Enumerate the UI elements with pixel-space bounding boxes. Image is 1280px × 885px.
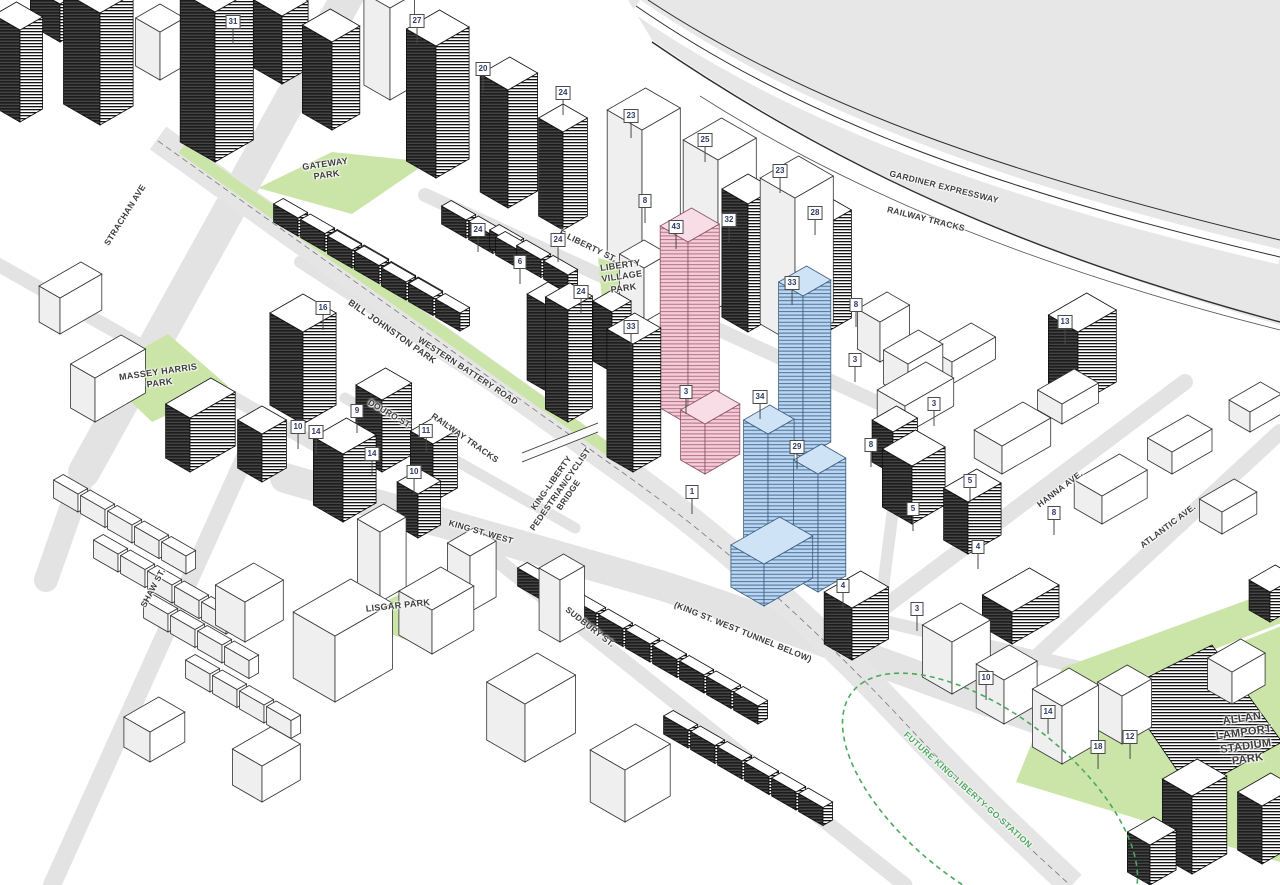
marker-leader-line [855,367,856,382]
marker-leader-line [316,439,317,454]
building-number-marker: 18 [1091,740,1106,769]
park-label: GATEWAY PARK [302,156,351,185]
marker-leader-line [357,418,358,433]
street-label: SHAW ST. [138,567,167,610]
building-number-marker: 8 [1048,506,1061,535]
marker-leader-line [483,76,484,91]
building-number-marker: 8 [865,438,878,467]
building-number-marker: 23 [773,164,788,193]
marker-leader-line [871,452,872,467]
future-go-station-label: FUTURE KING-LIBERTY GO STATION [902,729,1035,850]
marker-number: 6 [514,255,527,269]
building-number-marker: 8 [850,298,863,327]
building-number-marker: 33 [785,276,800,305]
marker-leader-line [1065,329,1066,344]
park-label: BILL JOHNSTON PARK [346,297,438,366]
marker-leader-line [426,438,427,453]
marker-leader-line [760,404,761,419]
marker-number: 5 [964,474,977,488]
building-number-marker: 6 [514,255,527,284]
park-label: ALLAN LAMPORT STADIUM PARK [1213,709,1277,771]
marker-leader-line [298,434,299,449]
marker-leader-line [631,123,632,138]
marker-leader-line [705,147,706,162]
marker-number: 43 [669,220,684,234]
marker-number: 9 [351,404,364,418]
marker-leader-line [323,315,324,330]
building-number-marker: 10 [979,671,994,700]
marker-number: 5 [907,502,920,516]
marker-number: 4 [837,579,850,593]
marker-leader-line [558,247,559,262]
marker-leader-line [815,220,816,235]
marker-leader-line [797,454,798,469]
marker-leader-line [1098,754,1099,769]
marker-leader-line [729,227,730,242]
marker-leader-line [478,237,479,252]
street-label: HANNA AVE. [1035,468,1085,509]
marker-number: 11 [419,424,433,438]
building-number-marker: 1 [686,485,699,514]
building-number-marker: 29 [790,440,805,469]
marker-number: 25 [698,133,713,147]
marker-leader-line [692,499,693,514]
marker-number: 29 [790,440,805,454]
marker-number: 3 [849,353,862,367]
marker-leader-line [970,488,971,503]
building-number-marker: 4 [837,579,850,608]
marker-number: 28 [808,206,823,220]
building-number-marker: 14 [309,425,324,454]
building-number-marker: 14 [365,447,380,476]
building-number-marker: 27 [410,14,425,43]
building-number-marker: 33 [624,320,639,349]
marker-leader-line [563,100,564,115]
marker-leader-line [1130,744,1131,759]
street-label: WESTERN BATTERY ROAD [416,335,520,408]
street-label: STRACHAN AVE [102,182,148,247]
building-number-marker: 12 [1123,730,1138,759]
marker-number: 33 [624,320,639,334]
marker-number: 18 [1091,740,1106,754]
marker-leader-line [581,299,582,314]
marker-number: 27 [410,14,425,28]
marker-leader-line [676,234,677,249]
building-number-marker: 3 [928,397,941,426]
building-number-marker: 34 [753,390,768,419]
marker-leader-line [414,479,415,494]
marker-leader-line [986,685,987,700]
park-label: LISGAR PARK [365,597,430,615]
marker-number: 13 [1058,315,1073,329]
building-number-marker: 31 [226,15,241,44]
marker-number: 8 [850,298,863,312]
building-number-marker: 16 [316,301,331,330]
marker-number: 24 [556,86,571,100]
building-number-marker: 10 [407,465,422,494]
marker-number: 16 [316,301,331,315]
marker-leader-line [645,208,646,223]
marker-number: 14 [365,447,380,461]
marker-leader-line [856,312,857,327]
marker-leader-line [780,178,781,193]
liberty-village-axonometric-map: STRACHAN AVEGARDINER EXPRESSWAYRAILWAY T… [0,0,1280,885]
marker-leader-line [233,29,234,44]
marker-number: 4 [972,540,985,554]
building-number-marker: 32 [722,213,737,242]
building-number-marker: 3 [849,353,862,382]
marker-number: 10 [291,420,306,434]
map-annotation-overlay: STRACHAN AVEGARDINER EXPRESSWAYRAILWAY T… [0,0,1280,885]
marker-number: 3 [928,397,941,411]
marker-leader-line [843,593,844,608]
marker-leader-line [417,28,418,43]
street-label: DOURO ST. [366,397,414,431]
marker-number: 32 [722,213,737,227]
building-number-marker: 24 [574,285,589,314]
marker-leader-line [978,554,979,569]
building-number-marker: 4 [972,540,985,569]
marker-leader-line [372,461,373,476]
marker-number: 3 [680,385,693,399]
marker-number: 1 [686,485,699,499]
marker-leader-line [1048,719,1049,734]
building-number-marker: 24 [556,86,571,115]
marker-leader-line [917,616,918,631]
building-number-marker: 28 [808,206,823,235]
marker-number: 23 [624,109,639,123]
marker-number: 14 [309,425,324,439]
park-label: MASSEY HARRIS PARK [118,361,199,394]
building-number-marker: 3 [680,385,693,414]
street-label: GARDINER EXPRESSWAY [888,168,999,205]
building-number-marker: 5 [964,474,977,503]
building-number-marker: 20 [476,62,491,91]
marker-leader-line [792,290,793,305]
building-number-marker: 14 [1041,705,1056,734]
marker-number: 8 [1048,506,1061,520]
marker-number: 24 [574,285,589,299]
street-label: E LIBERTY ST. [557,227,618,264]
building-number-marker: 25 [698,133,713,162]
building-number-marker: 13 [1058,315,1073,344]
marker-number: 8 [639,194,652,208]
marker-number: 12 [1123,730,1138,744]
building-number-marker: 8 [639,194,652,223]
tunnel-note: (KING ST. WEST TUNNEL BELOW) [673,599,814,664]
building-number-marker: 5 [907,502,920,531]
marker-number: 20 [476,62,491,76]
street-label: SUDBURY ST. [563,604,616,649]
building-number-marker: 9 [351,404,364,433]
marker-number: 10 [979,671,994,685]
building-number-marker: 23 [624,109,639,138]
marker-leader-line [934,411,935,426]
building-number-marker: 10 [291,420,306,449]
street-label: RAILWAY TRACKS [429,411,500,465]
marker-leader-line [1054,520,1055,535]
pedestrian-bridge-label: KING-LIBERTY PEDESTRIAN/CYCLIST BRIDGE [519,439,602,538]
marker-number: 14 [1041,705,1056,719]
street-label: KING ST. WEST [447,518,514,547]
building-number-marker: 24 [471,223,486,252]
park-label: LIBERTY VILLAGE PARK [599,257,644,296]
marker-number: 8 [865,438,878,452]
marker-leader-line [913,516,914,531]
street-label: ATLANTIC AVE. [1138,502,1198,551]
marker-number: 31 [226,15,241,29]
marker-number: 10 [407,465,422,479]
building-number-marker: 3 [911,602,924,631]
marker-number: 23 [773,164,788,178]
street-label: RAILWAY TRACKS [886,204,966,234]
marker-number: 3 [911,602,924,616]
marker-leader-line [631,334,632,349]
marker-leader-line [520,269,521,284]
building-number-marker: 43 [669,220,684,249]
building-number-marker: 11 [419,424,433,453]
marker-number: 34 [753,390,768,404]
marker-number: 24 [471,223,486,237]
marker-leader-line [686,399,687,414]
marker-number: 33 [785,276,800,290]
